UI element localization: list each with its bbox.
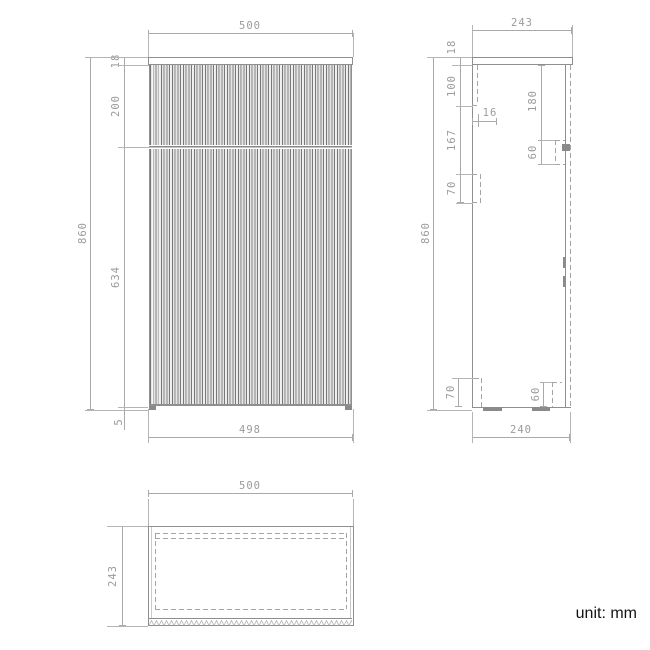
front-fluted-body — [149, 65, 352, 406]
ext-line — [541, 164, 555, 165]
ext-line — [353, 33, 354, 57]
side-foot-front — [483, 407, 502, 411]
ext-line — [118, 65, 149, 66]
dim-label-front-drawer-height: 200 — [110, 95, 122, 117]
top-side-edge-right — [350, 527, 351, 618]
dim-line-side-hinge-lower — [458, 378, 459, 407]
hidden-body-back-inner — [155, 538, 346, 539]
hidden-drawer-runner — [477, 65, 478, 105]
back-panel-mark — [563, 276, 565, 287]
ext-line — [541, 140, 555, 141]
dim-label-side-front-inset: 16 — [483, 107, 498, 119]
dim-label-front-top-thickness: 18 — [110, 54, 122, 69]
side-back-hidden-edge — [570, 65, 571, 407]
ext-line — [148, 33, 149, 57]
wall-bracket-hook — [562, 144, 570, 151]
dim-line-front-width-body — [148, 437, 353, 438]
front-foot-left — [149, 406, 156, 410]
hidden-hinge-upper — [472, 202, 481, 203]
dim-label-side-depth-top: 243 — [511, 17, 533, 29]
dim-label-side-bracket-height: 60 — [527, 145, 539, 160]
hidden-wall-bracket-upper — [555, 140, 556, 165]
hidden-wall-bracket-lower — [552, 382, 553, 407]
side-foot-back — [532, 407, 550, 411]
dim-label-side-hinge-upper: 70 — [446, 181, 458, 196]
hidden-wall-bracket-lower — [552, 382, 562, 383]
ext-line — [572, 25, 573, 57]
dim-label-side-runner-offset: 100 — [446, 75, 458, 97]
tick — [478, 114, 479, 127]
dim-line-top-depth — [122, 526, 123, 626]
front-foot-right — [345, 406, 352, 410]
top-side-edge-left — [151, 527, 152, 618]
dim-line-side-depth-top — [472, 30, 572, 31]
ext-line — [472, 25, 473, 57]
ext-line — [353, 409, 354, 443]
hidden-wall-bracket-upper — [555, 140, 565, 141]
ext-line — [452, 378, 474, 379]
dim-line-front-height-overall — [90, 57, 91, 410]
dim-line-front-segments — [124, 57, 125, 430]
hidden-body-right — [346, 533, 347, 609]
ext-line — [118, 147, 149, 148]
ext-line — [148, 499, 149, 526]
dim-label-side-height-overall: 860 — [420, 222, 432, 244]
ext-line — [148, 409, 149, 443]
dim-label-front-width-body: 498 — [239, 424, 261, 436]
ext-line — [427, 57, 472, 58]
hidden-wall-bracket-upper — [555, 164, 565, 165]
dim-line-side-segments — [460, 57, 461, 203]
unit-note: unit: mm — [545, 605, 637, 623]
hidden-body-left — [155, 533, 156, 609]
dim-label-front-door-height: 634 — [110, 266, 122, 288]
top-panel-outline — [148, 526, 354, 626]
back-panel-mark — [563, 257, 565, 268]
ext-line — [543, 382, 552, 383]
dim-label-side-depth-body: 240 — [510, 424, 532, 436]
dim-label-side-mid-gap: 167 — [446, 129, 458, 151]
dim-line-side-height-overall — [433, 57, 434, 410]
dim-label-side-bracket-offset: 180 — [527, 90, 539, 112]
dim-line-side-bracket — [541, 65, 542, 165]
ext-line — [456, 174, 473, 175]
dim-label-top-width: 500 — [239, 480, 261, 492]
ext-line — [85, 410, 148, 411]
hidden-hinge-lower — [481, 378, 482, 407]
dim-label-front-width-top: 500 — [239, 20, 261, 32]
ext-line — [456, 203, 473, 204]
dim-label-front-height-overall: 860 — [77, 222, 89, 244]
fluted-edge-zigzag — [149, 620, 352, 626]
fluted-front-line — [149, 618, 352, 619]
dim-label-top-depth: 243 — [107, 565, 119, 587]
ext-line — [570, 412, 571, 443]
hidden-hinge-upper — [480, 174, 481, 203]
dim-label-front-foot-height: 5 — [113, 418, 125, 425]
technical-drawing-canvas: 500 860 18 200 634 5 498 — [0, 0, 650, 650]
ext-line — [427, 410, 472, 411]
side-top-panel — [472, 57, 573, 65]
ext-line — [452, 65, 472, 66]
side-front-edge — [472, 65, 473, 407]
front-drawer-divider — [149, 145, 352, 149]
ext-line — [118, 407, 148, 408]
ext-line — [85, 57, 148, 58]
dim-line-front-width-top — [148, 33, 353, 34]
dim-line-side-front-inset — [472, 121, 497, 122]
hidden-body-back — [155, 533, 346, 534]
dim-label-side-bracket-lower: 60 — [530, 387, 542, 402]
ext-line — [107, 526, 148, 527]
hidden-body-front — [155, 609, 346, 610]
dim-line-top-width — [148, 493, 353, 494]
ext-line — [353, 499, 354, 526]
front-top-panel — [148, 57, 353, 65]
dim-line-side-depth-body — [472, 437, 570, 438]
dim-label-side-hinge-lower: 70 — [445, 385, 457, 400]
side-back-panel — [565, 65, 566, 407]
ext-line — [472, 412, 473, 443]
ext-line — [456, 106, 473, 107]
dim-line-side-bracket-lower — [543, 382, 544, 407]
dim-label-side-top-thickness: 18 — [446, 40, 458, 55]
ext-line — [107, 626, 148, 627]
